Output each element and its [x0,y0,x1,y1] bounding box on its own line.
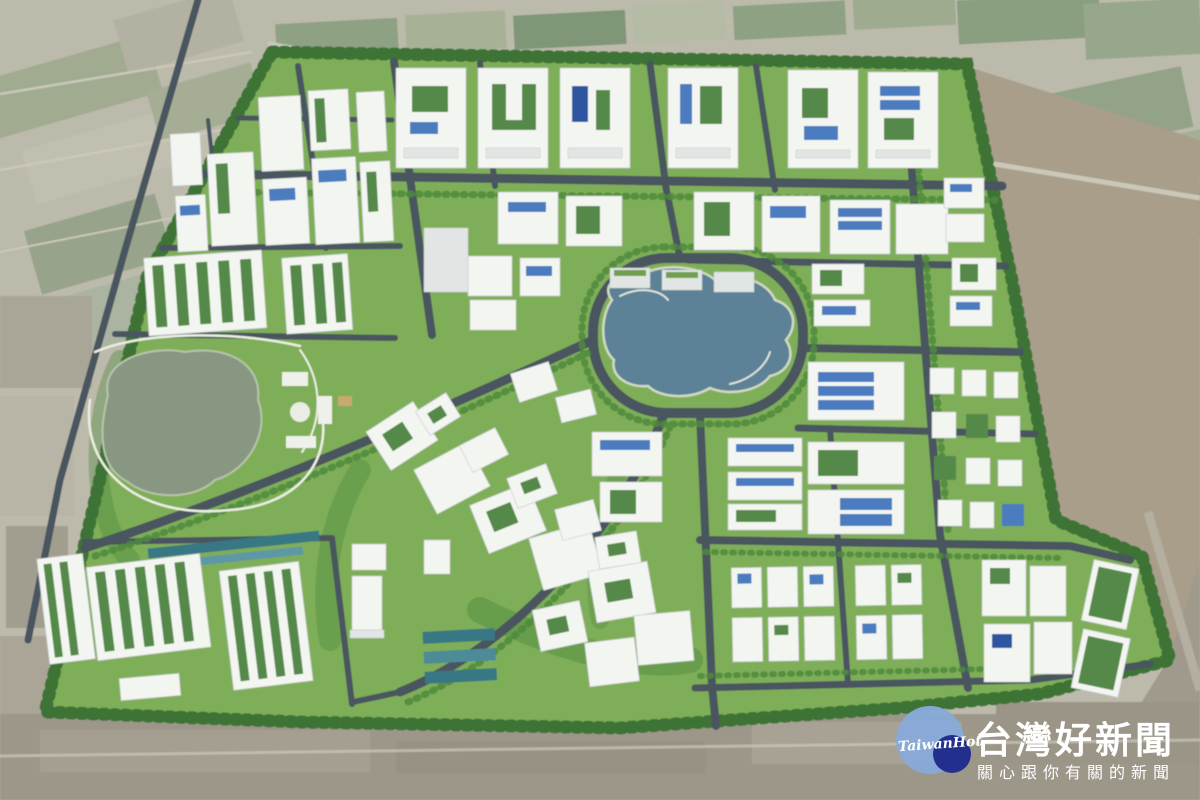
rowhouse-cluster-midleft [144,250,353,336]
watermark-title: 台灣好新聞 [975,719,1175,762]
aerial-site-plan-image: TaiwanHot 台灣好新聞 關心跟你有關的新聞 [0,0,1200,800]
watermark-subtitle: 關心跟你有關的新聞 [977,763,1175,782]
central-lake-garden [603,267,793,396]
site-plan-rendering: TaiwanHot 台灣好新聞 關心跟你有關的新聞 [0,0,1200,800]
buildings-right-center-factories [808,362,904,534]
plaza-accent [338,396,352,406]
plaza-circle [290,402,310,422]
treatment-ponds [422,628,497,684]
